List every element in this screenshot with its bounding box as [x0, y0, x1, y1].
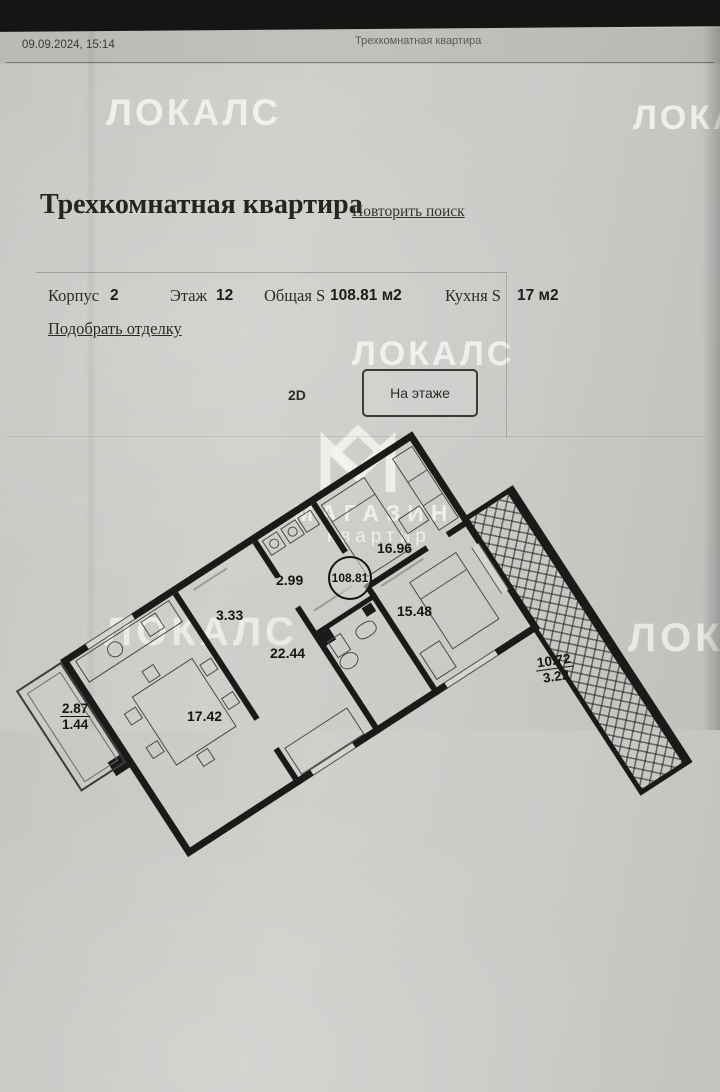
small-balcony-area-full: 2.87	[60, 701, 90, 717]
field-label-total-area: Общая S	[264, 286, 325, 306]
print-timestamp: 09.09.2024, 15:14	[22, 39, 115, 51]
field-label-kitchen-area: Кухня S	[445, 286, 501, 306]
print-header-divider	[6, 62, 714, 63]
small-balcony-area-label: 2.87 1.44	[60, 701, 90, 732]
field-value-floor: 12	[216, 287, 233, 305]
loggia-area-label: 10.72 3.22	[534, 651, 576, 687]
repeat-search-link[interactable]: Повторить поиск	[352, 203, 465, 221]
details-panel-border-top	[36, 272, 506, 273]
printed-page-photo: { "photo": { "timestamp": "09.09.2024, 1…	[0, 0, 720, 730]
room-label-bathroom: 3.33	[216, 607, 243, 623]
on-floor-button-label: На этаже	[390, 385, 450, 401]
room-label-hallway: 22.44	[270, 645, 305, 661]
field-label-floor: Этаж	[170, 286, 207, 306]
room-label-laundry: 2.99	[276, 572, 303, 588]
field-value-kitchen-area: 17 м2	[517, 287, 559, 305]
page-title: Трехкомнатная квартира	[40, 189, 363, 221]
field-value-building: 2	[110, 287, 119, 305]
room-label-kitchen-living: 17.42	[187, 708, 222, 724]
print-page-title: Трехкомнатная квартира	[355, 35, 481, 47]
field-label-building: Корпус	[48, 286, 99, 306]
field-value-total-area: 108.81 м2	[330, 287, 402, 305]
total-area-badge: 108.81	[328, 556, 372, 600]
paper-crease	[86, 0, 96, 730]
select-finish-link[interactable]: Подобрать отделку	[48, 319, 182, 339]
brand-watermark: ЛОКАЛС	[106, 92, 281, 134]
room-label-bedroom-2: 15.48	[397, 603, 432, 619]
room-label-bedroom-1: 16.96	[377, 540, 412, 556]
tab-2d[interactable]: 2D	[288, 387, 306, 403]
page-edge-shadow	[702, 0, 720, 730]
